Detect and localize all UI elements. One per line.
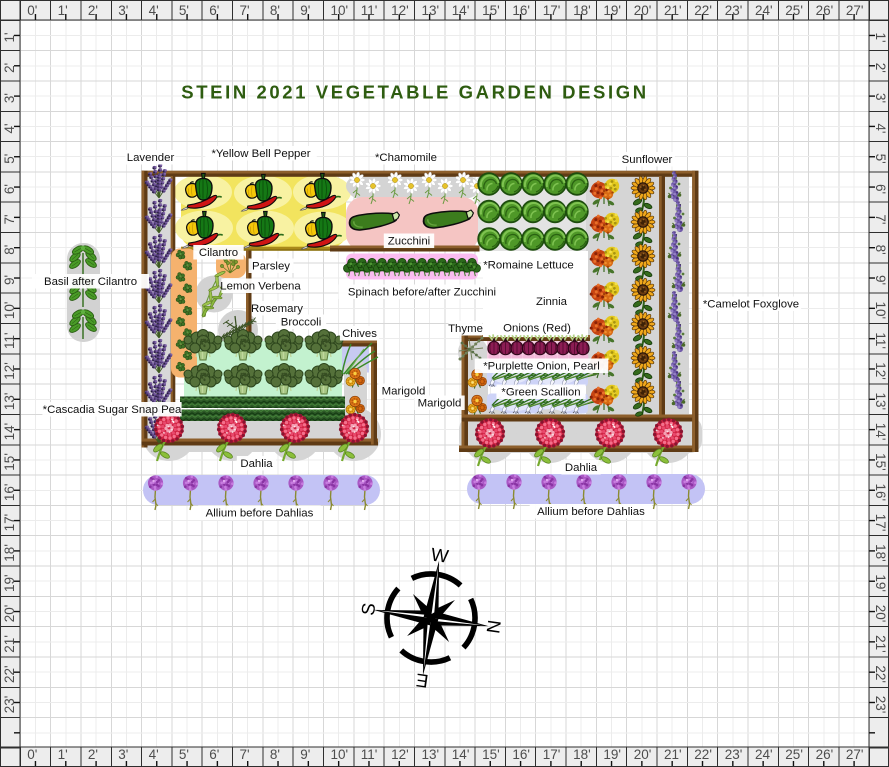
svg-text:9': 9' <box>873 275 888 285</box>
svg-text:Allium before Dahlias: Allium before Dahlias <box>206 508 314 520</box>
svg-text:Basil after Cilantro: Basil after Cilantro <box>44 276 137 288</box>
svg-text:17': 17' <box>543 747 561 762</box>
svg-text:4': 4' <box>149 3 159 18</box>
svg-text:2': 2' <box>873 63 888 73</box>
svg-text:14': 14' <box>2 423 17 441</box>
svg-text:20': 20' <box>634 3 652 18</box>
svg-text:2': 2' <box>2 63 17 73</box>
svg-text:21': 21' <box>873 635 888 653</box>
svg-text:26': 26' <box>816 3 834 18</box>
svg-text:19': 19' <box>603 747 621 762</box>
svg-text:Cilantro: Cilantro <box>199 247 238 259</box>
svg-text:19': 19' <box>873 574 888 592</box>
svg-text:21': 21' <box>2 635 17 653</box>
svg-text:23': 23' <box>725 3 743 18</box>
svg-text:3': 3' <box>118 3 128 18</box>
svg-text:6': 6' <box>209 3 219 18</box>
svg-text:Thyme: Thyme <box>448 323 483 335</box>
svg-text:Dahlia: Dahlia <box>240 458 273 470</box>
svg-text:8': 8' <box>270 3 280 18</box>
svg-text:13': 13' <box>422 747 440 762</box>
svg-text:7': 7' <box>240 747 250 762</box>
svg-text:18': 18' <box>573 747 591 762</box>
svg-text:27': 27' <box>846 3 864 18</box>
svg-text:1': 1' <box>2 32 17 42</box>
svg-text:23': 23' <box>725 747 743 762</box>
svg-text:Sunflower: Sunflower <box>622 154 673 166</box>
svg-text:6': 6' <box>873 184 888 194</box>
svg-text:15': 15' <box>482 3 500 18</box>
svg-text:11': 11' <box>873 332 888 349</box>
svg-text:*Cascadia Sugar Snap Pea: *Cascadia Sugar Snap Pea <box>43 404 182 416</box>
svg-text:22': 22' <box>694 3 712 18</box>
svg-text:22': 22' <box>694 747 712 762</box>
svg-text:14': 14' <box>452 3 470 18</box>
svg-text:14': 14' <box>873 423 888 441</box>
svg-text:16': 16' <box>873 484 888 502</box>
svg-text:10': 10' <box>331 747 349 762</box>
svg-text:1': 1' <box>873 32 888 42</box>
svg-text:22': 22' <box>2 665 17 683</box>
svg-text:1': 1' <box>58 3 68 18</box>
svg-text:2': 2' <box>88 3 98 18</box>
svg-text:4': 4' <box>2 123 17 133</box>
svg-text:*Green Scallion: *Green Scallion <box>501 387 580 399</box>
svg-text:3': 3' <box>2 93 17 103</box>
svg-text:STEIN 2021 VEGETABLE GARDEN DE: STEIN 2021 VEGETABLE GARDEN DESIGN <box>181 82 648 103</box>
svg-text:Parsley: Parsley <box>252 261 290 273</box>
svg-text:25': 25' <box>785 3 803 18</box>
svg-text:0': 0' <box>27 747 37 762</box>
svg-text:11': 11' <box>361 747 378 762</box>
svg-text:26': 26' <box>816 747 834 762</box>
svg-text:Onions (Red): Onions (Red) <box>503 323 571 335</box>
svg-text:6': 6' <box>209 747 219 762</box>
svg-text:21': 21' <box>664 747 682 762</box>
svg-text:*Chamomile: *Chamomile <box>375 152 437 164</box>
svg-text:23': 23' <box>2 696 17 714</box>
svg-text:Broccoli: Broccoli <box>281 317 322 329</box>
svg-text:Chives: Chives <box>342 328 377 340</box>
svg-text:10': 10' <box>331 3 349 18</box>
svg-text:3': 3' <box>118 747 128 762</box>
svg-text:15': 15' <box>482 747 500 762</box>
svg-text:18': 18' <box>573 3 591 18</box>
svg-text:24': 24' <box>755 3 773 18</box>
svg-text:4': 4' <box>149 747 159 762</box>
svg-text:7': 7' <box>2 214 17 224</box>
svg-text:19': 19' <box>2 574 17 592</box>
svg-text:Lavender: Lavender <box>127 152 175 164</box>
svg-text:W: W <box>430 544 451 567</box>
svg-text:16': 16' <box>512 747 530 762</box>
svg-text:Lemon Verbena: Lemon Verbena <box>220 281 301 293</box>
svg-text:22': 22' <box>873 665 888 683</box>
svg-text:Dahlia: Dahlia <box>565 462 598 474</box>
svg-text:*Camelot Foxglove: *Camelot Foxglove <box>703 299 799 311</box>
svg-text:3': 3' <box>873 93 888 103</box>
svg-text:Allium before Dahlias: Allium before Dahlias <box>537 506 645 518</box>
svg-text:13': 13' <box>873 393 888 411</box>
svg-text:18': 18' <box>873 544 888 562</box>
svg-text:17': 17' <box>2 514 17 532</box>
svg-text:6': 6' <box>2 184 17 194</box>
svg-text:11': 11' <box>361 3 378 18</box>
svg-text:Zinnia: Zinnia <box>536 296 568 308</box>
svg-text:4': 4' <box>873 123 888 133</box>
svg-text:12': 12' <box>391 3 409 18</box>
svg-text:8': 8' <box>2 245 17 255</box>
svg-text:5': 5' <box>179 747 189 762</box>
svg-text:17': 17' <box>543 3 561 18</box>
svg-text:8': 8' <box>873 245 888 255</box>
svg-text:8': 8' <box>270 747 280 762</box>
svg-text:24': 24' <box>755 747 773 762</box>
svg-text:5': 5' <box>873 154 888 164</box>
svg-text:Marigold: Marigold <box>418 398 462 410</box>
svg-text:9': 9' <box>2 275 17 285</box>
svg-text:27': 27' <box>846 747 864 762</box>
svg-text:25': 25' <box>785 747 803 762</box>
svg-text:13': 13' <box>2 393 17 411</box>
svg-text:15': 15' <box>873 453 888 471</box>
svg-text:11': 11' <box>2 332 17 349</box>
svg-text:7': 7' <box>240 3 250 18</box>
svg-text:9': 9' <box>300 747 310 762</box>
svg-text:12': 12' <box>391 747 409 762</box>
svg-text:20': 20' <box>873 605 888 623</box>
svg-text:*Yellow Bell Pepper: *Yellow Bell Pepper <box>212 148 311 160</box>
svg-text:Rosemary: Rosemary <box>251 303 303 315</box>
svg-text:12': 12' <box>873 362 888 380</box>
svg-text:10': 10' <box>2 302 17 320</box>
svg-text:19': 19' <box>603 3 621 18</box>
svg-text:17': 17' <box>873 514 888 532</box>
svg-text:Zucchini: Zucchini <box>388 236 430 248</box>
svg-text:2': 2' <box>88 747 98 762</box>
svg-text:*Purplette Onion, Pearl: *Purplette Onion, Pearl <box>483 361 600 373</box>
svg-text:13': 13' <box>422 3 440 18</box>
svg-text:5': 5' <box>179 3 189 18</box>
svg-text:0': 0' <box>27 3 37 18</box>
svg-text:12': 12' <box>2 362 17 380</box>
svg-text:20': 20' <box>634 747 652 762</box>
svg-text:15': 15' <box>2 453 17 471</box>
svg-text:7': 7' <box>873 214 888 224</box>
svg-text:Spinach before/after Zucchini: Spinach before/after Zucchini <box>348 287 496 299</box>
svg-text:16': 16' <box>2 484 17 502</box>
svg-text:5': 5' <box>2 154 17 164</box>
svg-text:*Romaine Lettuce: *Romaine Lettuce <box>483 260 574 272</box>
svg-text:1': 1' <box>58 747 68 762</box>
svg-text:23': 23' <box>873 696 888 714</box>
svg-text:21': 21' <box>664 3 682 18</box>
svg-text:14': 14' <box>452 747 470 762</box>
svg-text:16': 16' <box>512 3 530 18</box>
svg-text:10': 10' <box>873 302 888 320</box>
svg-text:18': 18' <box>2 544 17 562</box>
svg-text:9': 9' <box>300 3 310 18</box>
svg-text:20': 20' <box>2 605 17 623</box>
